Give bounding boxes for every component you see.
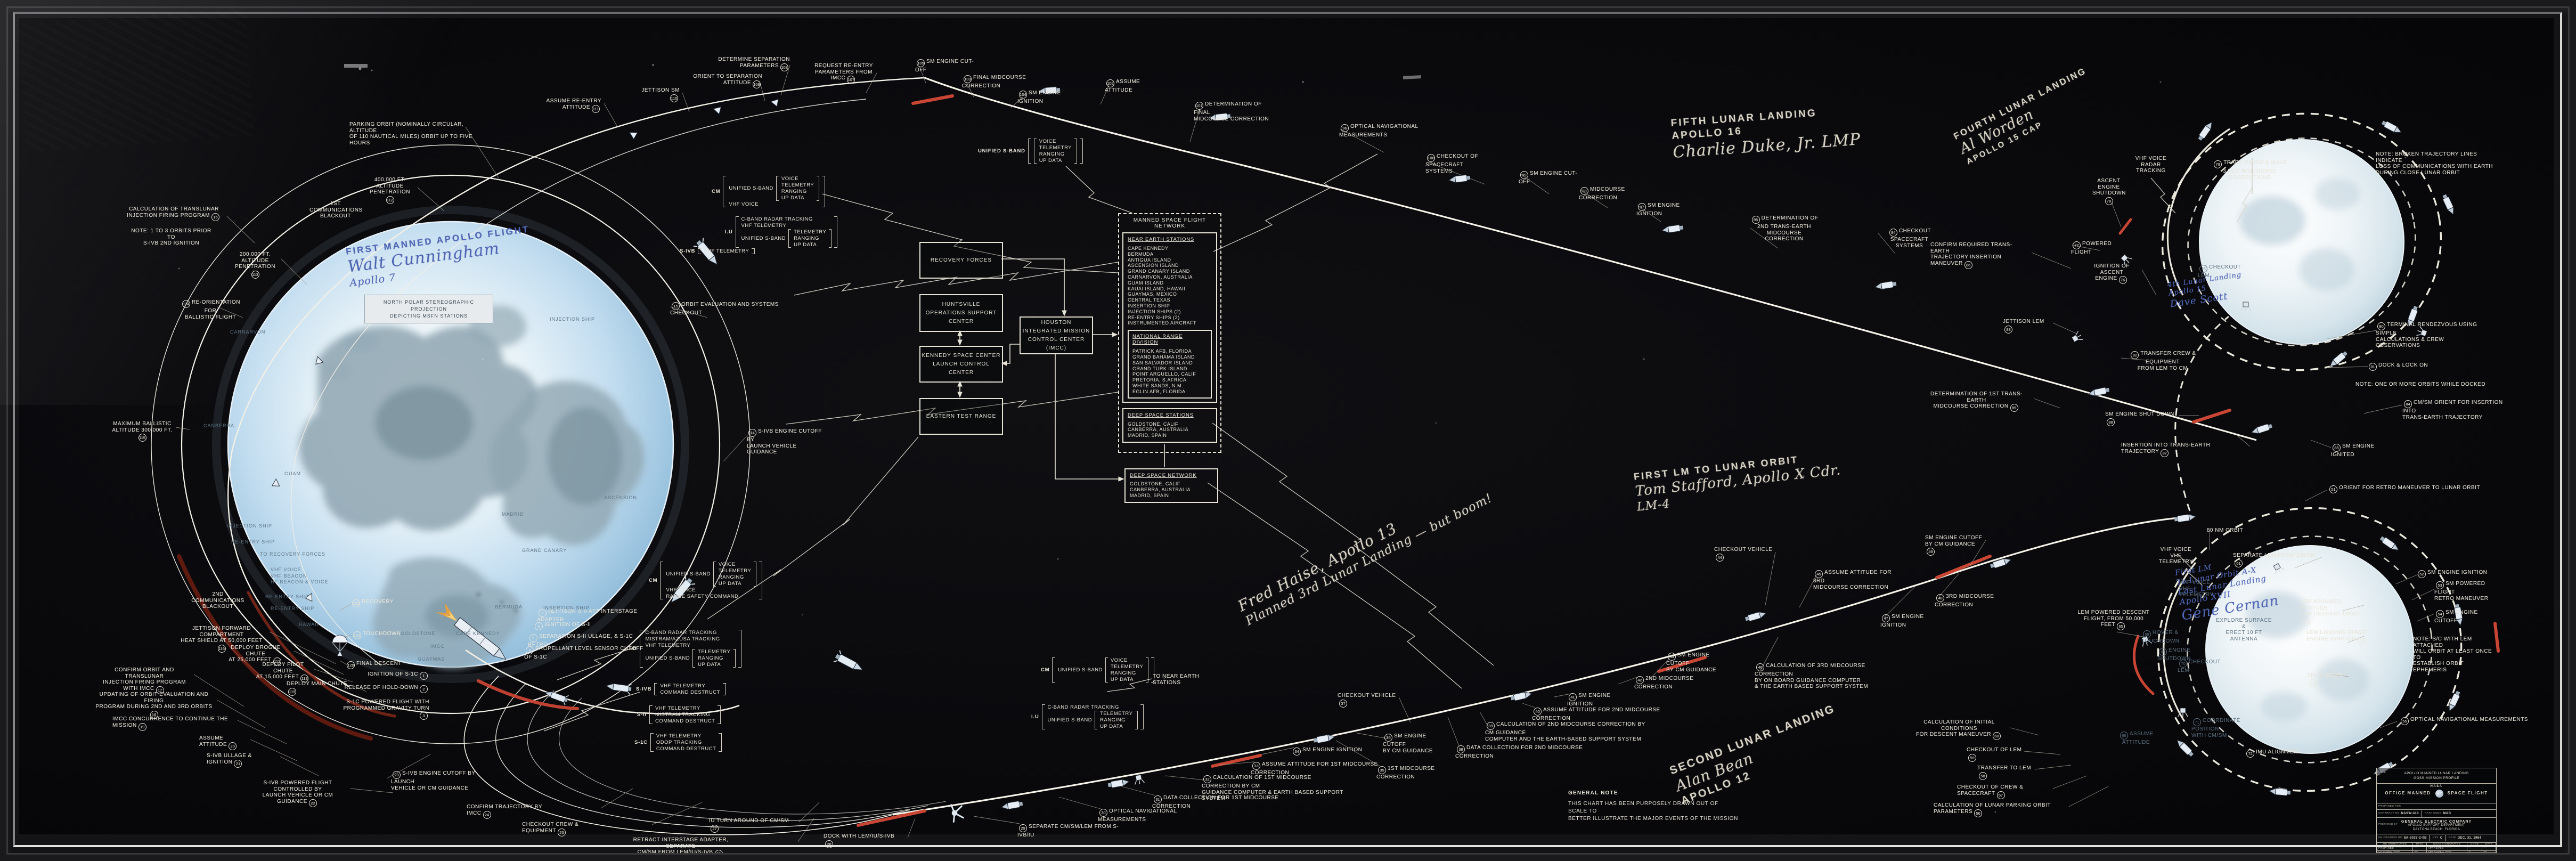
frame-outer [0, 0, 2576, 861]
framed-chart-photo: DETERMINE SEPARATION PARAMETERS108ORIENT… [0, 0, 2576, 861]
